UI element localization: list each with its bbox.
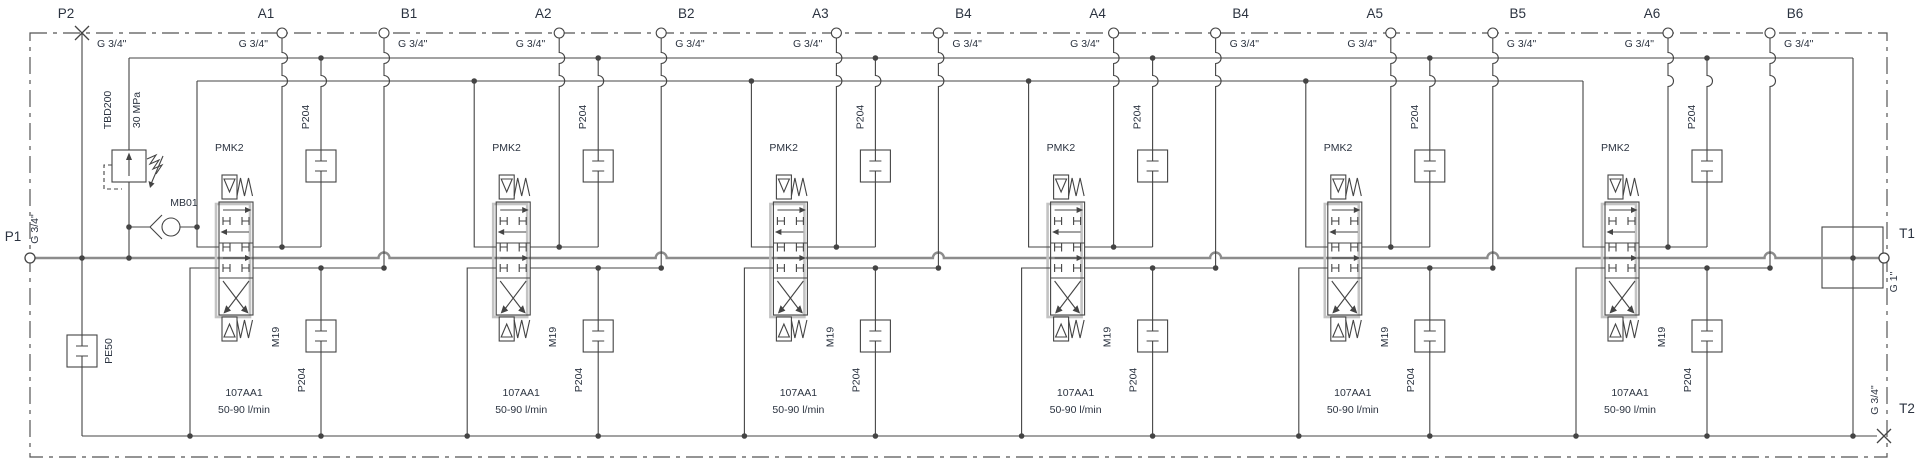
port-size-a-sec5: G 3/4" [1347, 38, 1377, 50]
junction-dot [1303, 78, 1309, 84]
relief-valve-setting: 30 MPa [131, 92, 143, 128]
port-label-B1-sec1: B1 [401, 6, 418, 21]
port-size-a-sec1: G 3/4" [239, 38, 269, 50]
cartridge-top-label-sec1: P204 [300, 105, 312, 130]
orifice-label-sec5: M19 [1379, 327, 1391, 348]
flow-range-sec4: 50-90 l/min [1050, 404, 1102, 416]
port-size-b-sec3: G 3/4" [952, 38, 982, 50]
port-label-A6-sec6: A6 [1644, 6, 1661, 21]
port-size-p1: G 3/4" [29, 214, 41, 244]
section-labels-layer: A1B1G 3/4"G 3/4"PMK2P204P204M19107AA150-… [215, 6, 1814, 416]
port-size-b-sec1: G 3/4" [398, 38, 428, 50]
valve-label-sec4: PMK2 [1047, 142, 1076, 154]
cartridge-bottom-label-sec5: P204 [1405, 368, 1417, 393]
spool-code-sec2: 107AA1 [503, 387, 541, 399]
orifice-label-sec4: M19 [1102, 327, 1114, 348]
port-size-b-sec2: G 3/4" [675, 38, 705, 50]
valve-section-3 [742, 28, 944, 439]
port-size-a-sec2: G 3/4" [516, 38, 546, 50]
valve-section-5 [1296, 28, 1498, 439]
spool-code-sec3: 107AA1 [780, 387, 818, 399]
cartridge-bottom-label-sec6: P204 [1682, 368, 1694, 393]
valve-label-sec5: PMK2 [1324, 142, 1353, 154]
junction-dot [471, 78, 477, 84]
flow-range-sec2: 50-90 l/min [495, 404, 547, 416]
manifold-boundary [30, 33, 1887, 457]
port-label-p2: P2 [58, 6, 75, 21]
plug-label: PE50 [103, 338, 115, 364]
orifice-label-sec2: M19 [547, 327, 559, 348]
hydraulic-schematic-sheet: P2 G 3/4" P1 G 3/4" T1 G 1" T2 G 3/4" TB… [0, 0, 1920, 467]
spool-code-sec5: 107AA1 [1334, 387, 1372, 399]
junction-dot [749, 78, 755, 84]
valve-section-2 [464, 28, 666, 439]
port-label-B5-sec5: B5 [1510, 6, 1527, 21]
flow-range-sec3: 50-90 l/min [772, 404, 824, 416]
port-size-a-sec3: G 3/4" [793, 38, 823, 50]
orifice-label-sec1: M19 [270, 327, 282, 348]
port-label-A2-sec2: A2 [535, 6, 552, 21]
cartridge-bottom-label-sec1: P204 [296, 368, 308, 393]
port-label-B4-sec4: B4 [1232, 6, 1249, 21]
flow-range-sec6: 50-90 l/min [1604, 404, 1656, 416]
valve-section-6 [1573, 28, 1775, 439]
check-valve-label: MB01 [170, 197, 198, 209]
port-size-b-sec5: G 3/4" [1507, 38, 1537, 50]
port-label-A1-sec1: A1 [258, 6, 275, 21]
static-linework [67, 33, 1883, 436]
port-label-t1: T1 [1899, 226, 1915, 241]
spool-code-sec1: 107AA1 [225, 387, 263, 399]
port-size-b-sec4: G 3/4" [1230, 38, 1260, 50]
cartridge-bottom-label-sec3: P204 [850, 368, 862, 393]
port-size-b-sec6: G 3/4" [1784, 38, 1814, 50]
flow-range-sec5: 50-90 l/min [1327, 404, 1379, 416]
relief-valve-label: TBD200 [102, 91, 114, 130]
port-label-t2: T2 [1899, 401, 1915, 416]
flow-range-sec1: 50-90 l/min [218, 404, 270, 416]
orifice-label-sec6: M19 [1656, 327, 1668, 348]
cartridge-top-label-sec3: P204 [854, 105, 866, 130]
port-t2-plugged-icon [1877, 429, 1891, 443]
cartridge-top-label-sec5: P204 [1409, 105, 1421, 130]
spool-code-sec6: 107AA1 [1611, 387, 1649, 399]
port-label-B2-sec2: B2 [678, 6, 695, 21]
valve-section-4 [1019, 28, 1221, 439]
port-label-A5-sec5: A5 [1367, 6, 1384, 21]
valve-label-sec3: PMK2 [769, 142, 798, 154]
cartridge-top-label-sec4: P204 [1132, 105, 1144, 130]
spool-code-sec4: 107AA1 [1057, 387, 1095, 399]
valve-label-sec2: PMK2 [492, 142, 521, 154]
check-valve-ball [162, 218, 180, 236]
orifice-label-sec3: M19 [824, 327, 836, 348]
cartridge-top-label-sec6: P204 [1686, 105, 1698, 130]
port-p1-symbol [25, 253, 35, 263]
port-size-a-sec6: G 3/4" [1625, 38, 1655, 50]
port-size-p2: G 3/4" [97, 38, 127, 50]
port-label-B4-sec3: B4 [955, 6, 972, 21]
port-size-t1: G 1" [1888, 271, 1900, 292]
port-label-A4-sec4: A4 [1089, 6, 1106, 21]
port-size-a-sec4: G 3/4" [1070, 38, 1100, 50]
port-label-A3-sec3: A3 [812, 6, 829, 21]
static-labels: P2 G 3/4" P1 G 3/4" T1 G 1" T2 G 3/4" TB… [5, 6, 1915, 416]
port-label-p1: P1 [5, 229, 22, 244]
hydraulic-schematic: P2 G 3/4" P1 G 3/4" T1 G 1" T2 G 3/4" TB… [0, 0, 1920, 467]
port-label-B6-sec6: B6 [1787, 6, 1804, 21]
valve-section-1 [187, 28, 389, 439]
valve-sections-layer [187, 28, 1775, 439]
cartridge-bottom-label-sec2: P204 [573, 368, 585, 393]
valve-label-sec6: PMK2 [1601, 142, 1630, 154]
cartridge-bottom-label-sec4: P204 [1128, 368, 1140, 393]
junction-dot [1026, 78, 1032, 84]
valve-label-sec1: PMK2 [215, 142, 244, 154]
port-t1-symbol [1879, 253, 1889, 263]
check-valve-seat [150, 215, 162, 239]
port-size-t2: G 3/4" [1869, 385, 1881, 415]
cartridge-top-label-sec2: P204 [577, 105, 589, 130]
